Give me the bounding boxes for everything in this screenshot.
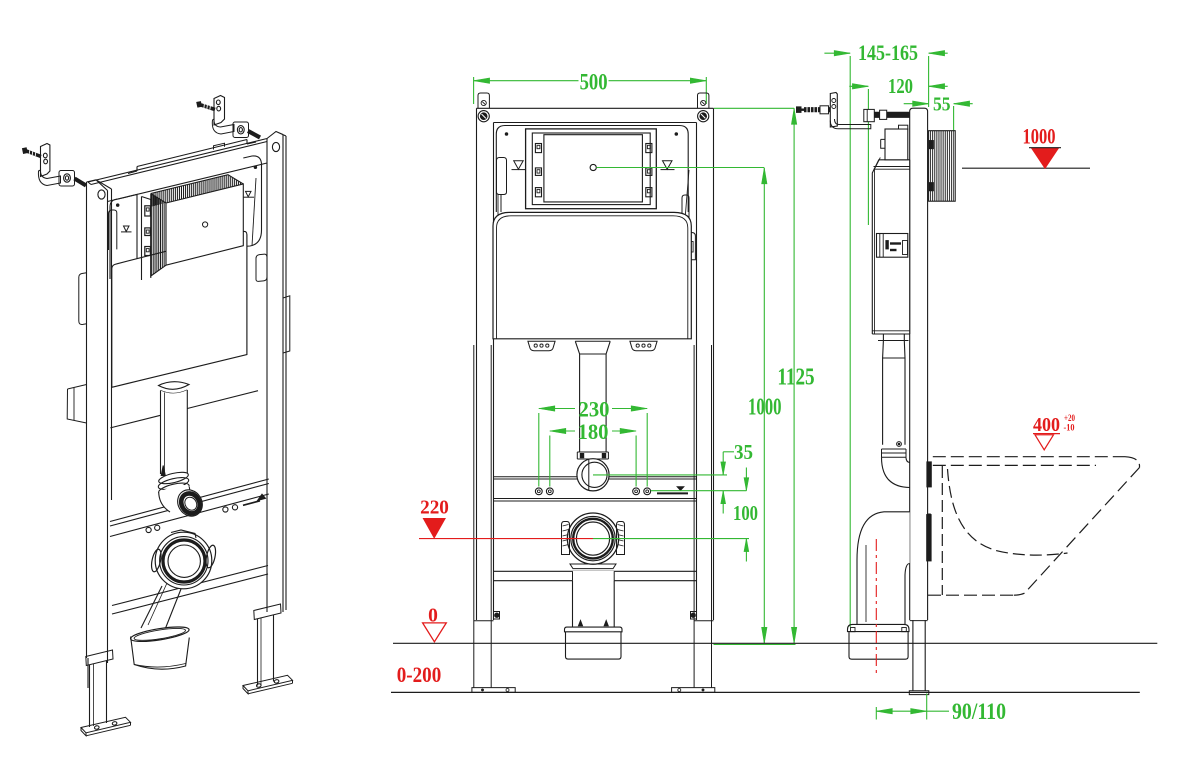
svg-text:1125: 1125 xyxy=(777,364,814,390)
svg-text:180: 180 xyxy=(578,419,609,444)
svg-text:220: 220 xyxy=(420,497,449,518)
svg-text:1000: 1000 xyxy=(1023,124,1056,149)
svg-text:1000: 1000 xyxy=(748,395,782,421)
svg-text:+20: +20 xyxy=(1064,414,1075,424)
svg-text:145-165: 145-165 xyxy=(858,40,918,65)
svg-text:90/110: 90/110 xyxy=(952,699,1006,724)
svg-text:-10: -10 xyxy=(1064,424,1075,434)
svg-text:100: 100 xyxy=(733,501,758,525)
svg-text:230: 230 xyxy=(579,396,610,421)
svg-text:400: 400 xyxy=(1033,414,1060,436)
svg-text:55: 55 xyxy=(933,93,951,115)
svg-text:0-200: 0-200 xyxy=(397,662,442,687)
svg-text:500: 500 xyxy=(580,69,608,94)
svg-text:35: 35 xyxy=(734,440,753,464)
svg-text:120: 120 xyxy=(888,74,913,98)
